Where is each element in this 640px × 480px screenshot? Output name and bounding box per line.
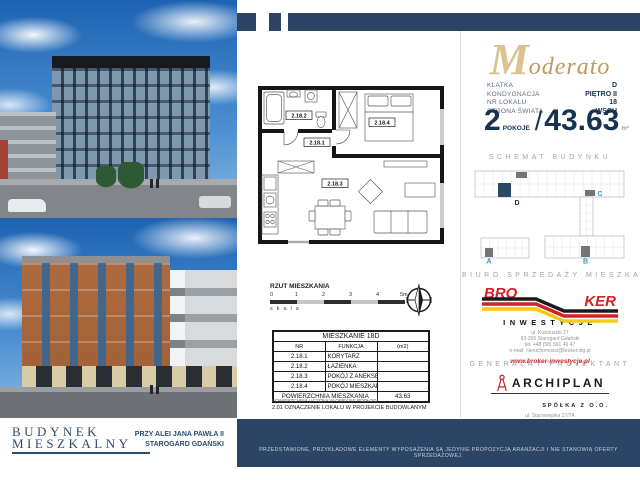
table-row: 2.18.3 POKÓJ Z ANEKSEM KUCHENNYM bbox=[273, 372, 429, 382]
cell-nr: 2.18.1 bbox=[273, 352, 325, 362]
render-person bbox=[156, 179, 159, 188]
scale-bar bbox=[270, 300, 405, 304]
info-value: PIĘTRO II bbox=[585, 91, 617, 98]
archiplan-subtitle-rule: SPÓŁKA Z O.O. bbox=[491, 393, 609, 412]
section-label-c: C bbox=[597, 191, 602, 198]
rooms-count: 2 bbox=[484, 109, 501, 133]
scale-tick: 4 bbox=[376, 292, 379, 298]
total-area-value: 43.63 bbox=[377, 392, 429, 403]
scale-tick: 2 bbox=[322, 292, 325, 298]
top-bar-segment bbox=[288, 13, 640, 31]
render-person bbox=[150, 179, 153, 188]
render-tree bbox=[96, 166, 116, 192]
moderato-rest: oderato bbox=[529, 54, 611, 80]
disclaimer-text: PRZEDSTAWIONE, PRZYKŁADOWE ELEMENTY WYPO… bbox=[237, 419, 640, 459]
compass-north-icon bbox=[404, 282, 434, 318]
compass-divider-icon bbox=[495, 374, 509, 392]
area-note: POWIERZCHNIA LICZONA W OBRYSIE PODŁOGI bbox=[272, 398, 378, 403]
disclaimer-bar: PRZEDSTAWIONE, PRZYKŁADOWE ELEMENTY WYPO… bbox=[237, 419, 640, 467]
cell-funkcja: KORYTARZ bbox=[325, 352, 377, 362]
info-label: KLATKA bbox=[487, 82, 513, 89]
building-schematic: A B C D bbox=[466, 167, 634, 264]
column-divider bbox=[460, 31, 461, 418]
section-label-d: D bbox=[514, 200, 519, 207]
scale-ticks: 0 1 2 3 4 5m bbox=[270, 292, 416, 298]
brand-sub2: STAROGARD GDAŃSKI bbox=[112, 440, 224, 450]
broker-stripes-icon bbox=[478, 297, 622, 323]
area-unit: m² bbox=[621, 126, 628, 132]
cell-m2 bbox=[377, 352, 429, 362]
broker-logo: BRO KER bbox=[478, 285, 622, 317]
render-person bbox=[150, 385, 153, 394]
table-row: 2.18.4 POKÓJ MIESZKALNY/SYPIALNIA bbox=[273, 382, 429, 392]
info-row: KLATKA D bbox=[487, 82, 617, 89]
room-label-bathroom: 2.18.2 bbox=[291, 114, 306, 120]
broker-logo-block: BRO KER INWESTYCJE ul. Kościuszki 27 83-… bbox=[462, 285, 638, 365]
unit-designation-note: 2.01 OZNACZENIE LOKALU W PROJEKCIE BUDOW… bbox=[272, 405, 426, 411]
top-bar-segment bbox=[237, 13, 256, 31]
floor-plan: 2.18.2 2.18.1 2.18.4 2.18.3 bbox=[258, 86, 444, 244]
cell-nr: 2.18.4 bbox=[273, 382, 325, 392]
brand-underline bbox=[12, 452, 150, 454]
cell-nr: 2.18.2 bbox=[273, 362, 325, 372]
cell-funkcja: POKÓJ MIESZKALNY/SYPIALNIA bbox=[325, 382, 377, 392]
col-header-funkcja: FUNKCJA bbox=[325, 342, 377, 352]
highlighted-unit bbox=[498, 183, 511, 197]
info-value: D bbox=[612, 82, 617, 89]
area-value: 43.63 bbox=[544, 109, 619, 133]
section-label-a: A bbox=[486, 259, 491, 265]
building-render-photo-top bbox=[0, 0, 237, 218]
room-label-bedroom: 2.18.4 bbox=[374, 121, 390, 127]
section-label-b: B bbox=[583, 259, 588, 265]
room-label-living: 2.18.3 bbox=[327, 182, 342, 188]
render-tree bbox=[118, 162, 144, 194]
moderato-logo: Moderato bbox=[460, 40, 640, 81]
info-row: KONDYGNACJA PIĘTRO II bbox=[487, 91, 617, 98]
scale-tick: 3 bbox=[349, 292, 352, 298]
cell-funkcja: ŁAZIENKA bbox=[325, 362, 377, 372]
render-building-side bbox=[0, 112, 56, 186]
plan-caption: RZUT MIESZKANIA bbox=[270, 283, 330, 290]
col-header-m2: (m2) bbox=[377, 342, 429, 352]
broker-address: ul. Kościuszki 27 83-200 Starogard Gdańs… bbox=[462, 330, 638, 354]
building-brand-subtitle: PRZY ALEI JANA PAWŁA II STAROGARD GDAŃSK… bbox=[112, 430, 224, 449]
scale-tick: 0 bbox=[270, 292, 273, 298]
cell-funkcja: POKÓJ Z ANEKSEM KUCHENNYM bbox=[325, 372, 377, 382]
col-header-nr: NR bbox=[273, 342, 325, 352]
table-title: MIESZKANIE 18D bbox=[273, 331, 429, 342]
table-row: 2.18.1 KORYTARZ bbox=[273, 352, 429, 362]
cell-nr: 2.18.3 bbox=[273, 372, 325, 382]
stat-slash: / bbox=[535, 110, 543, 133]
scale-word: skala bbox=[270, 306, 303, 312]
rooms-area-stat: 2 POKOJE / 43.63 m² bbox=[484, 109, 634, 133]
building-render-photo-bottom bbox=[0, 218, 237, 418]
scale-tick: 1 bbox=[295, 292, 298, 298]
address-line: e-mail: nieruchomosci@broker.stg.pl bbox=[462, 348, 638, 354]
moderato-initial: M bbox=[490, 35, 529, 84]
info-label: KONDYGNACJA bbox=[487, 91, 540, 98]
cell-m2 bbox=[377, 362, 429, 372]
apartment-rooms-table: MIESZKANIE 18D NR FUNKCJA (m2) 2.18.1 KO… bbox=[272, 330, 430, 403]
room-label-corridor: 2.18.1 bbox=[309, 141, 324, 147]
table-row: 2.18.2 ŁAZIENKA bbox=[273, 362, 429, 372]
render-car bbox=[8, 199, 46, 212]
top-bar-segment bbox=[269, 13, 281, 31]
designer-heading: GENERALNY PROJEKTANT bbox=[462, 361, 638, 368]
cell-m2 bbox=[377, 372, 429, 382]
render-car bbox=[199, 196, 231, 208]
sales-office-heading: BIURO SPRZEDAŻY MIESZKAŃ bbox=[462, 272, 638, 279]
render-street bbox=[0, 387, 237, 418]
brand-sub1: PRZY ALEI JANA PAWŁA II bbox=[112, 430, 224, 440]
render-person bbox=[156, 385, 159, 394]
cell-m2 bbox=[377, 382, 429, 392]
rooms-label: POKOJE bbox=[503, 125, 530, 132]
flyer-page: BUDYNEK MIESZKALNY PRZY ALEI JANA PAWŁA … bbox=[0, 0, 640, 480]
archiplan-subtitle: SPÓŁKA Z O.O. bbox=[542, 403, 609, 409]
schematic-heading: SCHEMAT BUDYNKU bbox=[462, 154, 638, 161]
archiplan-name: ARCHIPLAN bbox=[512, 376, 605, 390]
